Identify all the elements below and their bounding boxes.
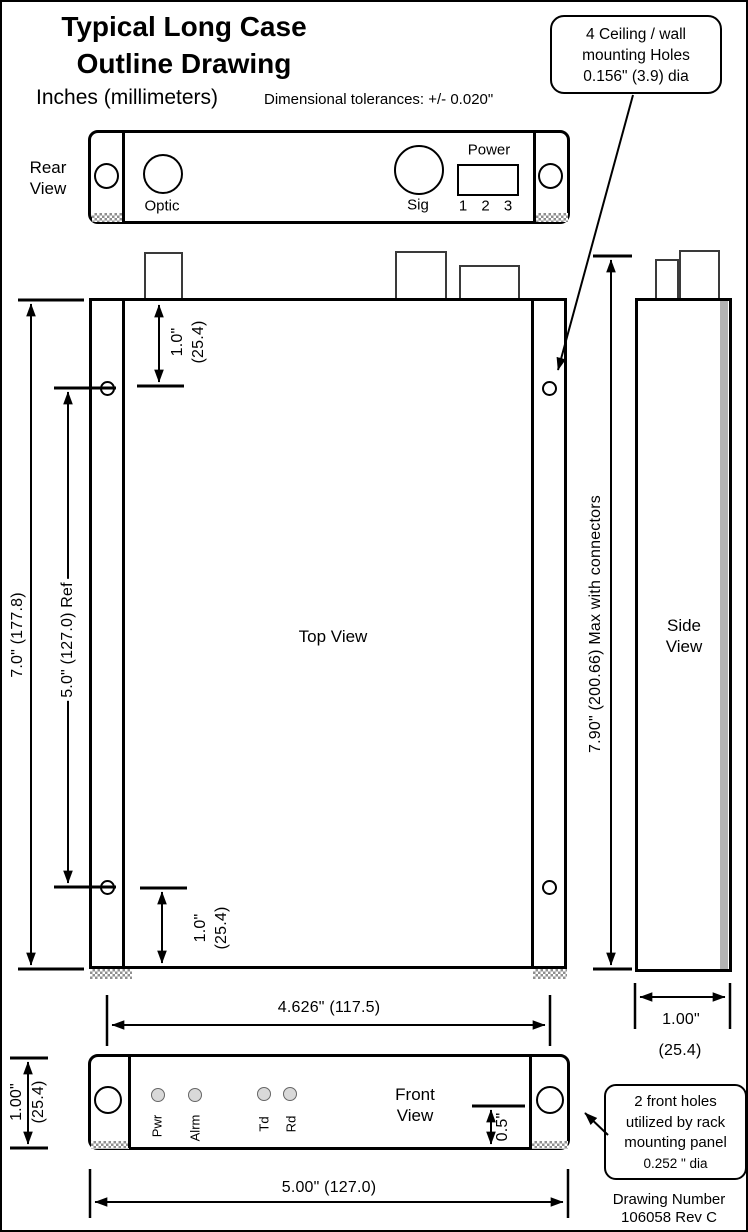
led-alrm: [188, 1088, 202, 1102]
dim-text-bottom-offset-in: 1.0": [192, 914, 210, 943]
rear-right-cap-divider: [533, 132, 536, 222]
callout-ceiling-line1: 4 Ceiling / wall: [552, 24, 720, 45]
page-title-line2: Outline Drawing: [24, 45, 344, 82]
power-pins-label: 1 2 3: [459, 198, 517, 215]
led-td-label: Td: [257, 1116, 272, 1131]
drawing-sheet: Typical Long Case Outline Drawing Inches…: [0, 0, 748, 1232]
rear-view-label-line1: Rear: [30, 157, 67, 178]
callout-ceiling-mounting-holes: 4 Ceiling / wall mounting Holes 0.156" (…: [550, 15, 722, 94]
led-rd: [283, 1087, 297, 1101]
optic-label: Optic: [144, 198, 179, 215]
dim-text-front-height-in: 1.00": [8, 1083, 26, 1121]
led-pwr-label: Pwr: [150, 1115, 165, 1137]
dim-text-overall-height: 7.0" (177.8): [9, 592, 27, 677]
dim-text-top-offset-in: 1.0": [169, 328, 187, 357]
tolerance-note: Dimensional tolerances: +/- 0.020": [264, 91, 493, 108]
callout-front-line1: 2 front holes: [606, 1092, 745, 1113]
drawing-number: Drawing Number 106058 Rev C: [613, 1191, 726, 1227]
rear-right-cap-hatch: [536, 213, 568, 222]
sig-label: Sig: [407, 197, 429, 214]
top-view-right-foot-hatch: [533, 969, 567, 979]
front-left-cap-hatch: [91, 1141, 129, 1149]
top-view-connector-optic: [144, 252, 183, 300]
page-title: Typical Long Case Outline Drawing: [24, 8, 344, 82]
side-view-connector-large: [679, 250, 720, 300]
front-view-label-line2: View: [395, 1105, 435, 1126]
power-label: Power: [468, 142, 511, 159]
front-right-cap-hatch: [532, 1141, 568, 1149]
rear-left-cap-divider: [122, 132, 125, 222]
dim-text-front-width: 5.00" (127.0): [282, 1179, 377, 1197]
rear-left-mounting-hole: [94, 163, 119, 189]
led-pwr: [151, 1088, 165, 1102]
top-view-hole-bottom-left: [100, 880, 115, 895]
dim-text-max-height: 7.90" (200.66) Max with connectors: [587, 495, 605, 753]
top-view-connector-power: [459, 265, 520, 300]
drawing-number-line2: 106058 Rev C: [613, 1209, 726, 1227]
front-view-label-line1: Front: [395, 1084, 435, 1105]
dim-text-front-height-mm: (25.4): [30, 1081, 48, 1124]
top-view-left-flange-line: [122, 301, 125, 966]
rear-view-label-line2: View: [30, 178, 67, 199]
callout-front-line4: 0.252 " dia: [606, 1154, 745, 1175]
top-view-left-foot-hatch: [90, 969, 132, 979]
dim-text-side-depth-in: 1.00": [662, 1011, 700, 1029]
side-view-connector-small: [655, 259, 679, 300]
front-right-cap-divider: [529, 1056, 532, 1148]
top-view-hole-bottom-right: [542, 880, 557, 895]
rear-left-cap-hatch: [92, 213, 123, 222]
top-view-hole-top-left: [100, 381, 115, 396]
drawing-number-line1: Drawing Number: [613, 1191, 726, 1209]
callout-front-line2: utilized by rack: [606, 1113, 745, 1134]
side-view-label-line1: Side: [666, 615, 703, 636]
dim-text-side-depth-mm: (25.4): [659, 1042, 702, 1060]
rear-view-label: Rear View: [30, 157, 67, 199]
front-right-rack-hole: [536, 1086, 564, 1114]
front-left-cap-divider: [128, 1056, 131, 1148]
side-view-label: Side View: [666, 615, 703, 657]
top-view-hole-top-right: [542, 381, 557, 396]
callout-ceiling-line2: mounting Holes: [552, 45, 720, 66]
callout-ceiling-line3: 0.156" (3.9) dia: [552, 66, 720, 87]
dim-text-led-offset: 0.5": [494, 1113, 512, 1142]
units-note: Inches (millimeters): [36, 86, 218, 110]
top-view-right-flange-line: [531, 301, 534, 966]
led-td: [257, 1087, 271, 1101]
side-view-label-line2: View: [666, 636, 703, 657]
front-view-label: Front View: [395, 1084, 435, 1126]
sig-connector-circle: [394, 145, 444, 195]
top-view-label: Top View: [299, 627, 368, 647]
dim-text-hole-spacing: 5.0" (127.0) Ref: [59, 579, 77, 701]
callout-front-line3: mounting panel: [606, 1133, 745, 1154]
optic-connector-circle: [143, 154, 183, 194]
page-title-line1: Typical Long Case: [24, 8, 344, 45]
rear-right-mounting-hole: [538, 163, 563, 189]
led-alrm-label: Alrm: [188, 1115, 203, 1142]
led-rd-label: Rd: [284, 1116, 299, 1133]
side-view-shaded-edge: [720, 301, 728, 969]
dim-text-bottom-offset-mm: (25.4): [213, 907, 231, 950]
top-view-connector-sig: [395, 251, 447, 300]
callout-front-holes: 2 front holes utilized by rack mounting …: [604, 1084, 747, 1180]
power-connector-rect: [457, 164, 519, 196]
front-left-rack-hole: [94, 1086, 122, 1114]
dim-text-hole-span: 4.626" (117.5): [278, 999, 380, 1017]
dim-text-top-offset-mm: (25.4): [190, 321, 208, 364]
